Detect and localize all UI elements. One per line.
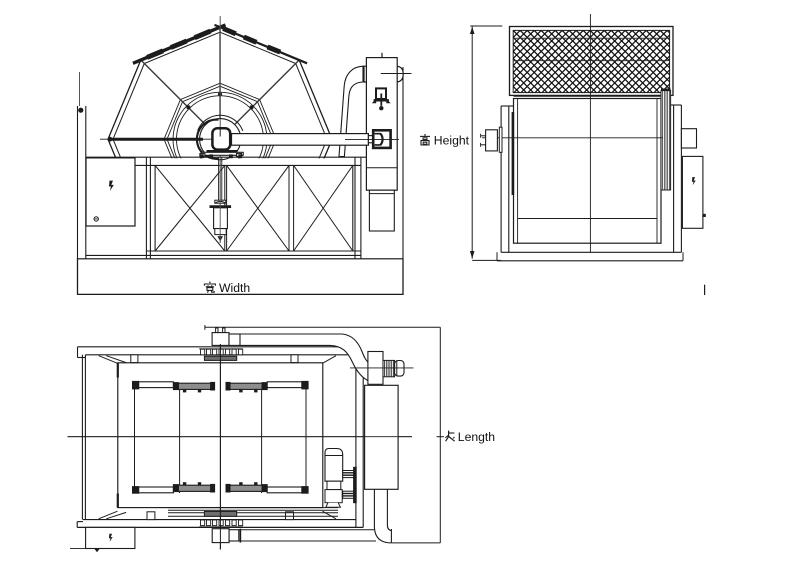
- svg-text:Length: Length: [458, 430, 495, 444]
- svg-text:Width: Width: [219, 281, 250, 295]
- svg-text:Height: Height: [434, 134, 470, 148]
